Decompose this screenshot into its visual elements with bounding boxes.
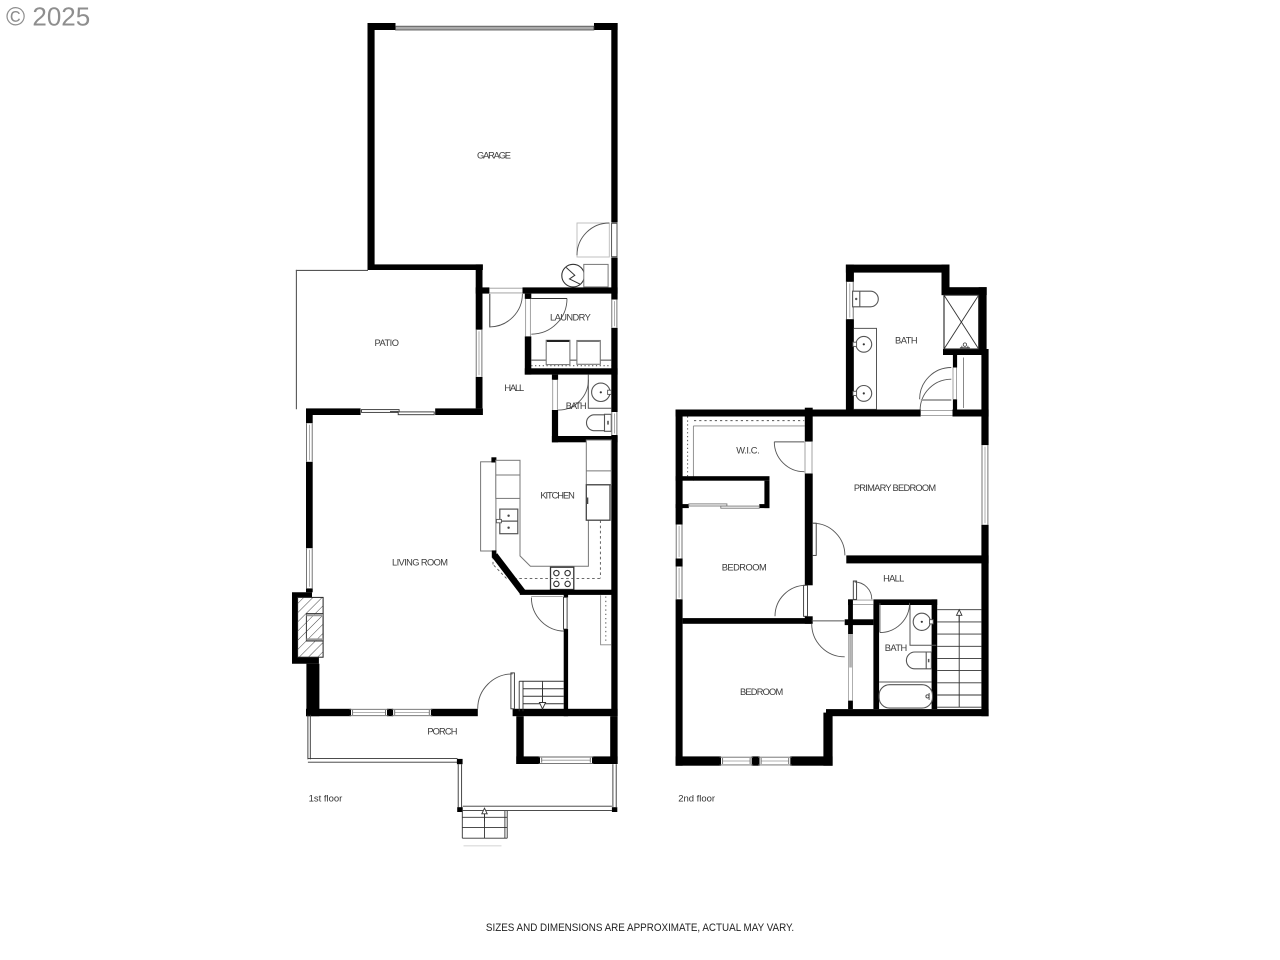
svg-text:BATH: BATH <box>895 336 918 346</box>
svg-text:W.I.C.: W.I.C. <box>736 445 760 455</box>
svg-text:PRIMARY BEDROOM: PRIMARY BEDROOM <box>854 483 936 493</box>
svg-text:LAUNDRY: LAUNDRY <box>550 313 591 323</box>
svg-text:BATH: BATH <box>566 401 587 411</box>
svg-text:1st floor: 1st floor <box>309 793 343 804</box>
svg-text:HALL: HALL <box>504 383 524 393</box>
svg-text:BEDROOM: BEDROOM <box>740 687 783 697</box>
svg-text:HALL: HALL <box>883 573 904 583</box>
svg-text:PATIO: PATIO <box>374 338 399 348</box>
svg-text:LIVING ROOM: LIVING ROOM <box>392 558 448 568</box>
svg-text:SIZES AND DIMENSIONS ARE APPRO: SIZES AND DIMENSIONS ARE APPROXIMATE, AC… <box>486 922 794 934</box>
svg-text:© 2025: © 2025 <box>6 2 90 32</box>
svg-text:BATH: BATH <box>885 643 908 653</box>
svg-text:2nd floor: 2nd floor <box>678 793 715 804</box>
svg-text:KITCHEN: KITCHEN <box>540 490 574 500</box>
svg-text:BEDROOM: BEDROOM <box>722 563 767 573</box>
svg-text:PORCH: PORCH <box>427 726 457 736</box>
svg-text:GARAGE: GARAGE <box>477 151 511 161</box>
